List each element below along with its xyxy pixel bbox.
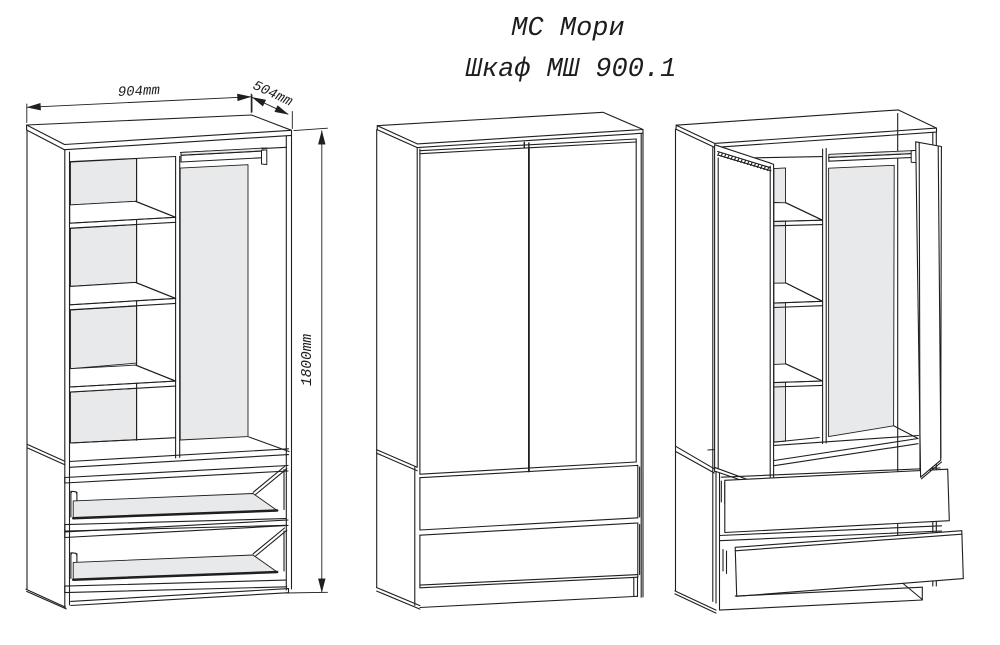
svg-text:МС Мори: МС Мори — [511, 14, 624, 44]
svg-text:Шкаф МШ 900.1: Шкаф МШ 900.1 — [465, 55, 677, 85]
svg-text:1800mm: 1800mm — [300, 334, 316, 387]
svg-text:904mm: 904mm — [117, 83, 160, 101]
